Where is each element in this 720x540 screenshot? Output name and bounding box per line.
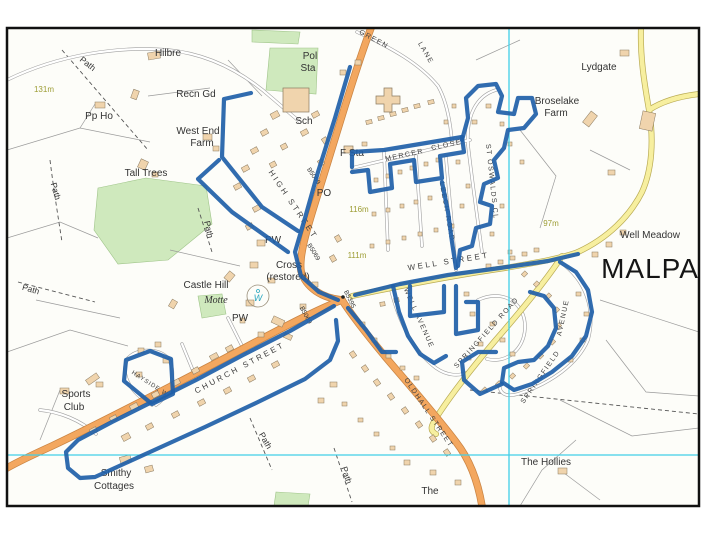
building bbox=[358, 418, 363, 422]
building bbox=[355, 60, 361, 65]
building bbox=[510, 256, 515, 260]
building bbox=[414, 200, 418, 204]
building bbox=[404, 460, 410, 465]
building bbox=[464, 292, 469, 296]
building bbox=[372, 212, 376, 216]
building bbox=[608, 170, 615, 175]
building bbox=[318, 398, 324, 403]
building bbox=[466, 184, 470, 188]
map-canvas: HilbrePath131mPp HoRecn GdWest EndFarmTa… bbox=[0, 0, 720, 540]
building bbox=[500, 204, 504, 208]
label-111m: 111m bbox=[348, 251, 367, 260]
building bbox=[444, 120, 448, 124]
building bbox=[400, 366, 405, 370]
label-pw: PW bbox=[232, 313, 249, 324]
label-pol: Pol bbox=[303, 51, 317, 62]
building bbox=[418, 232, 422, 236]
building bbox=[386, 208, 390, 212]
building bbox=[558, 468, 567, 474]
label-the: The bbox=[421, 486, 439, 497]
building bbox=[330, 382, 337, 387]
building bbox=[486, 104, 491, 108]
building bbox=[398, 170, 402, 174]
label-97m: 97m bbox=[543, 219, 559, 228]
label-farm: Farm bbox=[190, 138, 213, 149]
building bbox=[362, 142, 367, 146]
label-castle-hill: Castle Hill bbox=[183, 280, 228, 291]
building bbox=[430, 470, 436, 475]
label-motte: Motte bbox=[203, 295, 228, 306]
building bbox=[380, 302, 386, 307]
building bbox=[424, 162, 428, 166]
building bbox=[500, 338, 505, 342]
building bbox=[434, 228, 438, 232]
label-west-end: West End bbox=[176, 126, 219, 137]
building bbox=[510, 352, 515, 356]
map-sheet bbox=[7, 28, 699, 506]
label-116m: 116m bbox=[349, 205, 369, 214]
label-cottages: Cottages bbox=[94, 481, 134, 492]
label-sta: Sta bbox=[300, 63, 315, 74]
label-malpa: MALPA bbox=[601, 253, 699, 284]
school-building bbox=[283, 88, 309, 112]
building bbox=[374, 432, 379, 436]
label-sch: Sch bbox=[295, 116, 312, 127]
label-tall-trees: Tall Trees bbox=[125, 168, 168, 179]
building bbox=[155, 342, 161, 347]
building bbox=[490, 232, 494, 236]
building bbox=[470, 312, 475, 316]
map-screenshot: HilbrePath131mPp HoRecn GdWest EndFarmTa… bbox=[0, 0, 720, 540]
building bbox=[520, 160, 524, 164]
building bbox=[498, 260, 503, 264]
building bbox=[606, 242, 612, 247]
building bbox=[522, 252, 527, 256]
label-lydgate: Lydgate bbox=[581, 62, 617, 73]
building bbox=[472, 120, 477, 124]
building bbox=[370, 244, 374, 248]
building bbox=[534, 248, 539, 252]
label-hilbre: Hilbre bbox=[155, 48, 182, 59]
building bbox=[258, 332, 264, 337]
building bbox=[576, 292, 581, 296]
building bbox=[386, 354, 391, 358]
building bbox=[455, 480, 461, 485]
building bbox=[95, 102, 105, 108]
label-131m: 131m bbox=[34, 85, 54, 94]
building bbox=[414, 376, 419, 380]
label-recn-gd: Recn Gd bbox=[176, 89, 215, 100]
building bbox=[400, 204, 404, 208]
building bbox=[390, 446, 395, 450]
building bbox=[257, 240, 265, 246]
building bbox=[342, 402, 347, 406]
building bbox=[374, 178, 378, 182]
label-pp-ho: Pp Ho bbox=[85, 111, 113, 122]
label-well-meadow: Well Meadow bbox=[620, 230, 681, 241]
building bbox=[386, 240, 390, 244]
building bbox=[456, 160, 460, 164]
building bbox=[620, 50, 629, 56]
label-club: Club bbox=[64, 402, 85, 413]
label-sports: Sports bbox=[62, 389, 91, 400]
building bbox=[402, 236, 406, 240]
building bbox=[96, 382, 103, 387]
building bbox=[460, 204, 464, 208]
building bbox=[592, 252, 598, 257]
label-farm: Farm bbox=[544, 108, 567, 119]
building bbox=[213, 146, 219, 151]
building bbox=[584, 312, 589, 316]
label-po: PO bbox=[317, 188, 332, 199]
building bbox=[250, 262, 258, 268]
building bbox=[452, 104, 456, 108]
building bbox=[428, 196, 432, 200]
label-broselake: Broselake bbox=[535, 96, 580, 107]
building bbox=[500, 122, 504, 126]
label-the-hollies: The Hollies bbox=[521, 457, 571, 468]
building bbox=[340, 70, 346, 75]
